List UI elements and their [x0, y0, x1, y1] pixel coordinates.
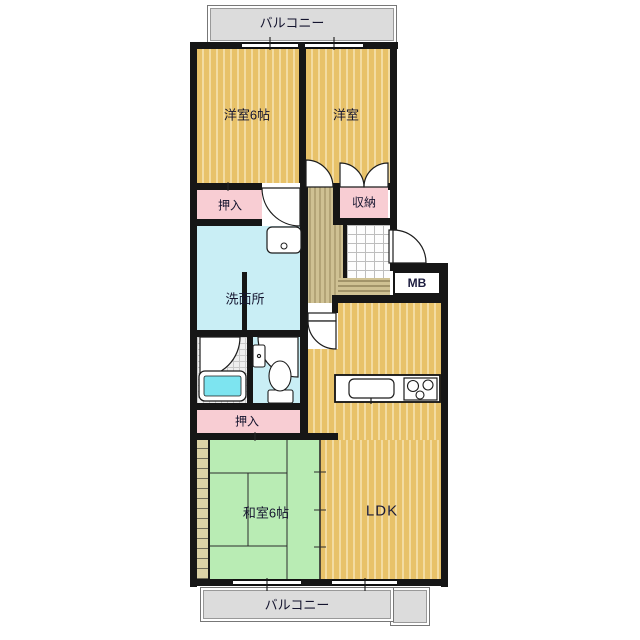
wall	[190, 403, 300, 410]
door-leaf-entrance	[389, 230, 397, 263]
window	[305, 42, 363, 49]
balcony-bottom-label: バルコニー	[265, 595, 330, 614]
ldk-label: LDK	[366, 503, 398, 520]
balcony-bottom-extension	[390, 587, 430, 626]
wall	[190, 42, 197, 587]
washroom	[197, 226, 300, 330]
toilet-room	[253, 337, 300, 403]
wall	[299, 49, 306, 183]
tatami-side-strip	[197, 440, 210, 579]
entrance-step	[338, 278, 390, 295]
entrance-genkan	[347, 225, 390, 278]
wall	[441, 263, 448, 587]
japanese-room-label: 和室6帖	[243, 503, 289, 522]
storage-label: 収納	[352, 194, 376, 211]
meter-box-label: MB	[408, 276, 427, 290]
corridor	[262, 183, 300, 226]
wall	[197, 183, 262, 190]
closet-top-label: 押入	[218, 197, 242, 214]
western2-label: 洋室	[333, 105, 359, 124]
wall	[332, 295, 338, 313]
closet-bottom-label: 押入	[235, 413, 259, 430]
wall	[190, 579, 448, 586]
wall	[190, 433, 338, 440]
window	[242, 42, 298, 49]
wall	[388, 183, 397, 190]
wall	[390, 42, 397, 232]
washroom-label: 洗面所	[225, 289, 264, 308]
room-ldk-upper	[338, 303, 441, 440]
wall	[190, 219, 262, 226]
wall	[300, 183, 308, 440]
balcony-top-label: バルコニー	[260, 13, 325, 32]
wall	[333, 295, 448, 303]
bathroom	[197, 337, 247, 403]
wall	[333, 218, 390, 225]
door-arc-entrance	[393, 230, 426, 263]
floor-plan: バルコニー 洋室6帖 洋室 押入 収納 洗面所 MB 押入 和室6帖 LDK バ…	[0, 0, 640, 640]
wall	[343, 225, 347, 278]
wall	[247, 337, 253, 403]
window	[332, 579, 397, 586]
western1-label: 洋室6帖	[224, 105, 270, 124]
wall	[390, 263, 448, 271]
room-ldk-mid	[308, 349, 341, 433]
window	[233, 579, 301, 586]
